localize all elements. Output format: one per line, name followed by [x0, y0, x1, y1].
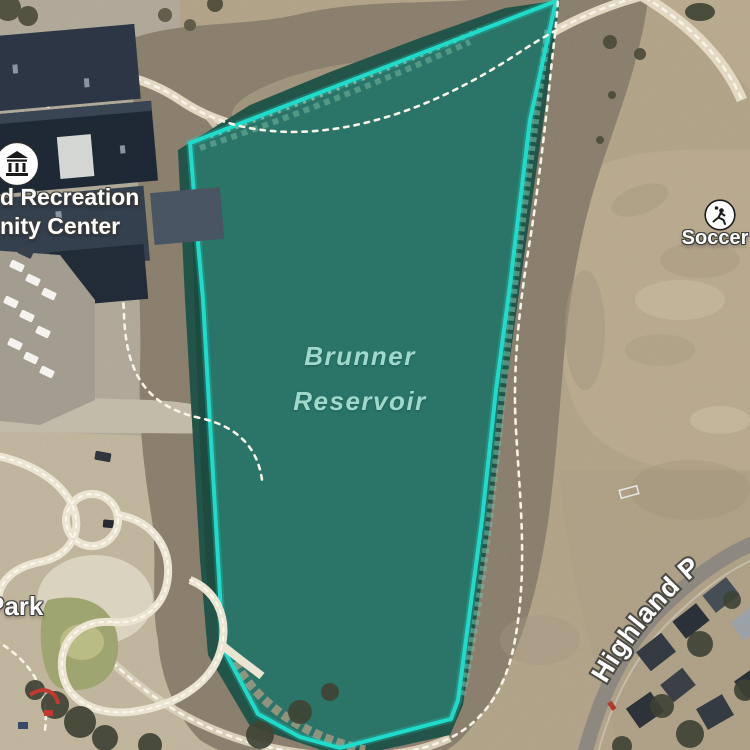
reservoir-label-line1: Brunner [250, 334, 470, 379]
reservoir-label[interactable]: Brunner Reservoir [250, 334, 470, 424]
reservoir-label-line2: Reservoir [250, 379, 470, 424]
soccer-label[interactable]: Soccer [672, 226, 750, 251]
park-label[interactable]: Park [0, 590, 43, 623]
recreation-center-label-line1: d Recreation [0, 183, 139, 212]
satellite-map-canvas[interactable]: Highland P Brunner Reservoir d Recreatio… [0, 0, 750, 750]
recreation-center-label-line2: nity Center [0, 212, 139, 241]
recreation-center-label[interactable]: d Recreation nity Center [0, 183, 139, 241]
